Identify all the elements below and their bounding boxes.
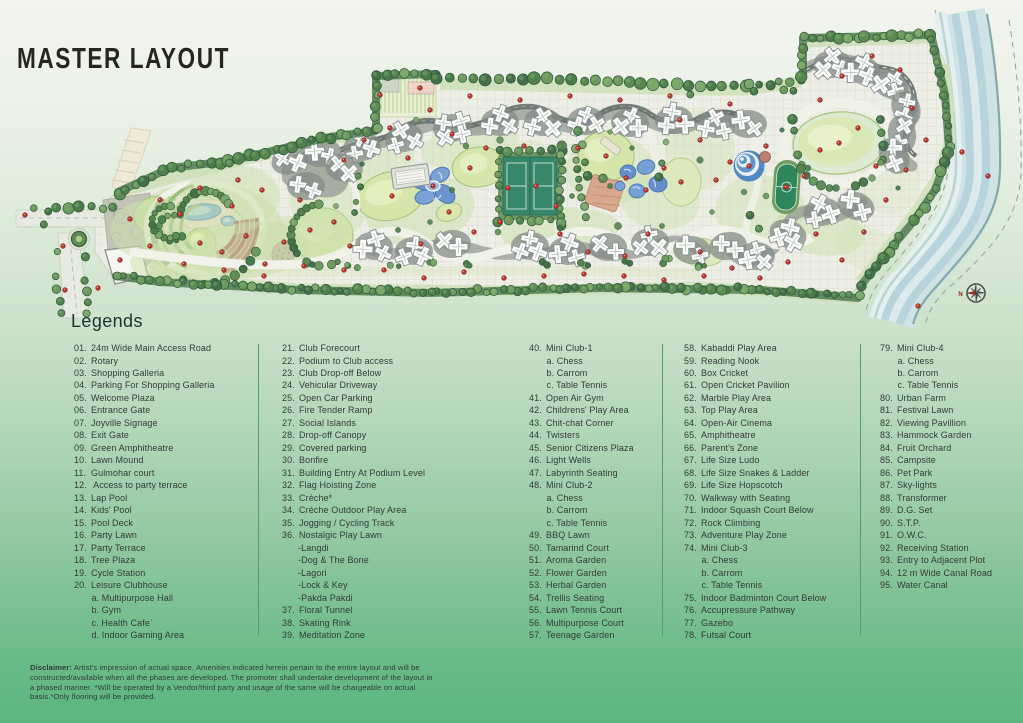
svg-text:N: N	[958, 292, 962, 298]
